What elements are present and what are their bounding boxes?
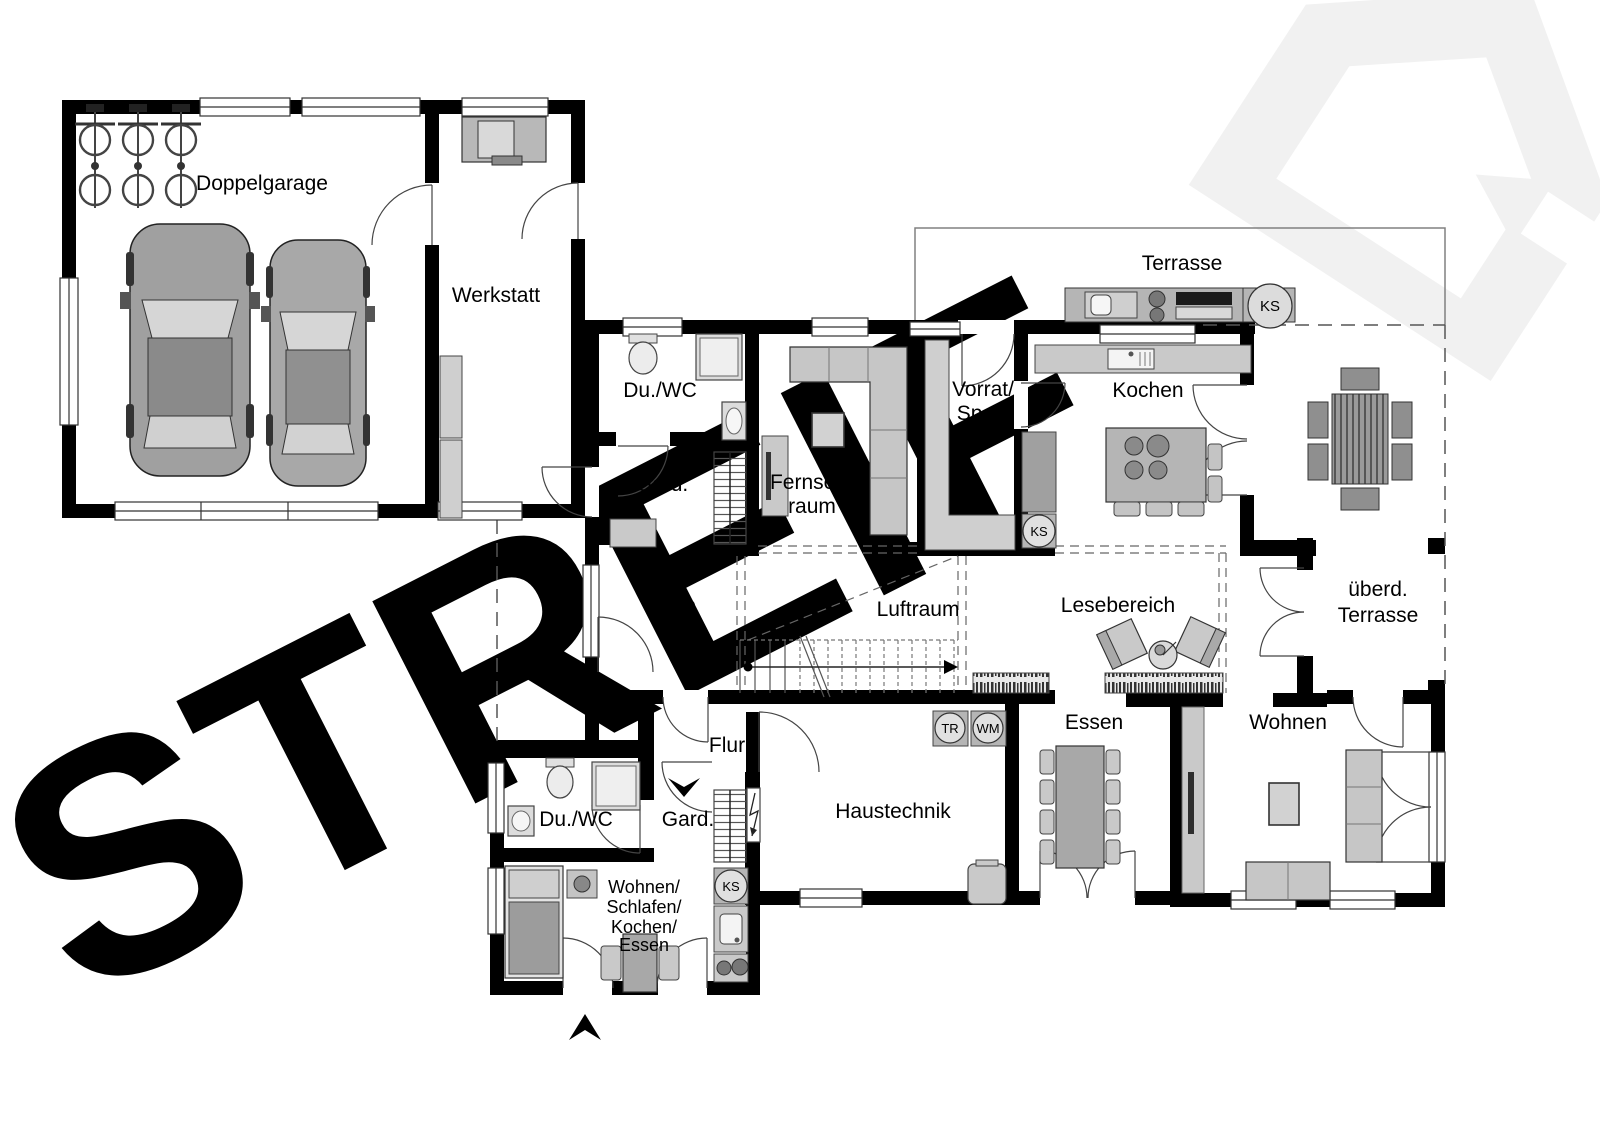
window <box>200 98 290 116</box>
wall-segment <box>1297 538 1313 570</box>
room-label-luftraum: Luftraum <box>877 598 960 621</box>
dining-table <box>1056 746 1104 868</box>
wall-segment <box>745 891 800 905</box>
door <box>1260 568 1304 612</box>
window <box>1429 752 1445 862</box>
room-label-lesebereich: Lesebereich <box>1061 594 1175 617</box>
ks-badge: KS <box>1260 298 1280 315</box>
wall-segment <box>585 517 613 545</box>
room-label-haustechnik: Haustechnik <box>835 800 951 823</box>
room-label-gard-eg: Gard. <box>636 473 689 496</box>
window <box>800 889 862 907</box>
wall-segment <box>1182 893 1231 907</box>
room-label-vorrat-1: Vorrat/ <box>952 378 1014 401</box>
coffee-table <box>1269 783 1299 825</box>
door <box>372 185 432 245</box>
window <box>910 322 960 336</box>
reading-area <box>973 617 1225 693</box>
wall-segment <box>1297 656 1313 696</box>
door <box>1376 807 1431 862</box>
window <box>488 868 504 934</box>
room-label-apartment-2: Schlafen/ <box>606 897 681 917</box>
wall-segment <box>1273 693 1327 707</box>
room-label-essen: Essen <box>1065 711 1123 734</box>
window <box>60 278 78 425</box>
ks-badge: KS <box>1030 524 1048 539</box>
tr-badge: TR <box>941 721 958 736</box>
window <box>488 763 504 833</box>
wall-segment <box>640 754 654 800</box>
window <box>115 502 378 520</box>
door <box>522 183 578 239</box>
apartment-inner-arrow <box>668 778 700 797</box>
kitchen-fridge-badge: KS <box>1022 514 1056 548</box>
wall-segment <box>1170 700 1182 907</box>
car-large <box>120 224 260 476</box>
tv <box>1188 772 1194 834</box>
room-label-vorrat-2: Speis <box>957 402 1010 425</box>
window <box>812 318 868 336</box>
dining-set <box>1040 746 1120 868</box>
apartment-entrance-arrow <box>569 1014 601 1040</box>
bicycle-icon <box>75 104 115 208</box>
wall-segment <box>490 981 563 995</box>
bookshelf <box>973 673 1049 693</box>
wall-segment <box>490 848 654 862</box>
floor-plan-page: STREIF <box>0 0 1600 1132</box>
wm-badge: WM <box>976 721 999 736</box>
room-label-apartment-4: Essen <box>619 935 669 955</box>
room-label-fernsehraum-2: raum <box>788 495 836 518</box>
floor-plan: STREIF <box>0 0 1600 1132</box>
wall-segment <box>1428 538 1445 554</box>
room-label-ueberd-terrasse-1: überd. <box>1348 578 1408 601</box>
room-label-diele: Diele <box>648 594 696 617</box>
room-label-du-wc-apartment: Du./WC <box>539 808 613 831</box>
blanket <box>509 902 559 974</box>
outdoor-dining-set <box>1308 368 1412 510</box>
grill <box>1176 292 1232 305</box>
room-label-apartment-1: Wohnen/ <box>608 877 680 897</box>
door <box>1376 752 1431 807</box>
sofa <box>1346 750 1382 862</box>
room-label-ueberd-terrasse-2: Terrasse <box>1338 604 1419 627</box>
coffee-table <box>812 413 844 447</box>
room-label-wohnen: Wohnen <box>1249 711 1327 734</box>
wall-segment <box>571 100 585 518</box>
laundry-appliances: TR WM <box>933 711 1006 746</box>
bicycle-icon <box>161 104 201 208</box>
hall-cabinet <box>610 519 656 547</box>
wall-segment <box>585 690 663 704</box>
room-label-flur: Flur <box>709 734 745 757</box>
window <box>623 318 682 336</box>
door <box>1260 612 1304 656</box>
window <box>583 565 599 657</box>
bookshelf <box>1105 673 1223 693</box>
window <box>302 98 420 116</box>
wall-segment <box>575 740 640 758</box>
outdoor-kitchen: KS <box>1065 284 1295 328</box>
door <box>1353 697 1403 747</box>
room-label-werkstatt: Werkstatt <box>452 284 540 307</box>
stair-direction-arrow <box>944 660 958 674</box>
window <box>462 98 548 116</box>
room-label-fernsehraum-1: Fernseh- <box>770 471 854 494</box>
room-label-doppelgarage: Doppelgarage <box>196 172 328 195</box>
kitchen-tall-unit <box>1022 432 1056 512</box>
wall-segment <box>1005 693 1019 905</box>
bicycles <box>75 104 201 208</box>
wall-segment <box>425 100 439 518</box>
room-label-apartment-3: Kochen/ <box>611 917 677 937</box>
bicycle-icon <box>118 104 158 208</box>
room-label-terrasse: Terrasse <box>1142 252 1223 275</box>
room-label-gard-apartment: Gard. <box>662 808 715 831</box>
werkstatt-cabinets <box>440 356 462 518</box>
car-small <box>261 240 375 486</box>
pillow <box>509 870 559 898</box>
room-label-kochen: Kochen <box>1112 379 1183 402</box>
room-label-du-wc-eg: Du./WC <box>623 379 697 402</box>
workbench <box>462 117 546 165</box>
ks-badge: KS <box>722 879 740 894</box>
living-room-furniture <box>1182 707 1382 900</box>
wall-segment <box>862 891 1040 905</box>
window <box>1100 325 1195 343</box>
window <box>1330 891 1395 909</box>
wall-segment <box>1327 690 1353 704</box>
boiler <box>968 864 1006 904</box>
